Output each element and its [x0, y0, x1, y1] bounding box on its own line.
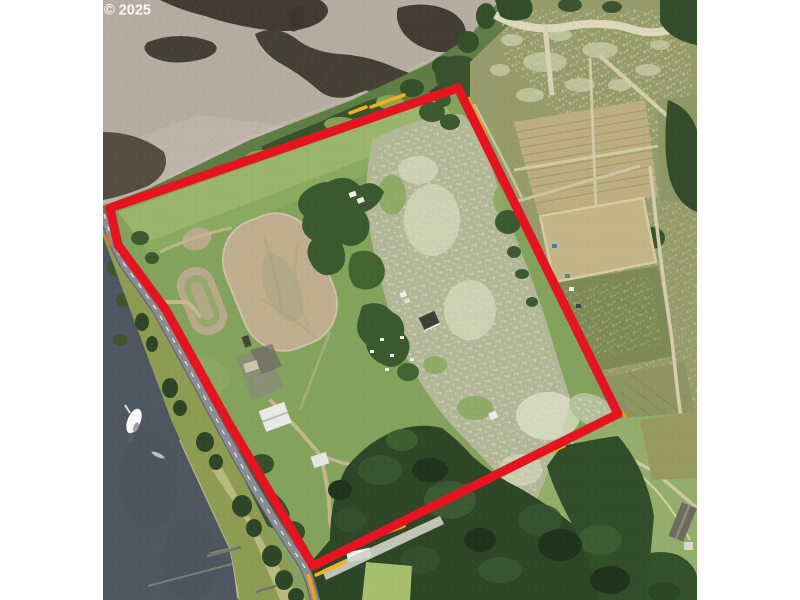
svg-text:© 2025: © 2025 [104, 3, 151, 19]
